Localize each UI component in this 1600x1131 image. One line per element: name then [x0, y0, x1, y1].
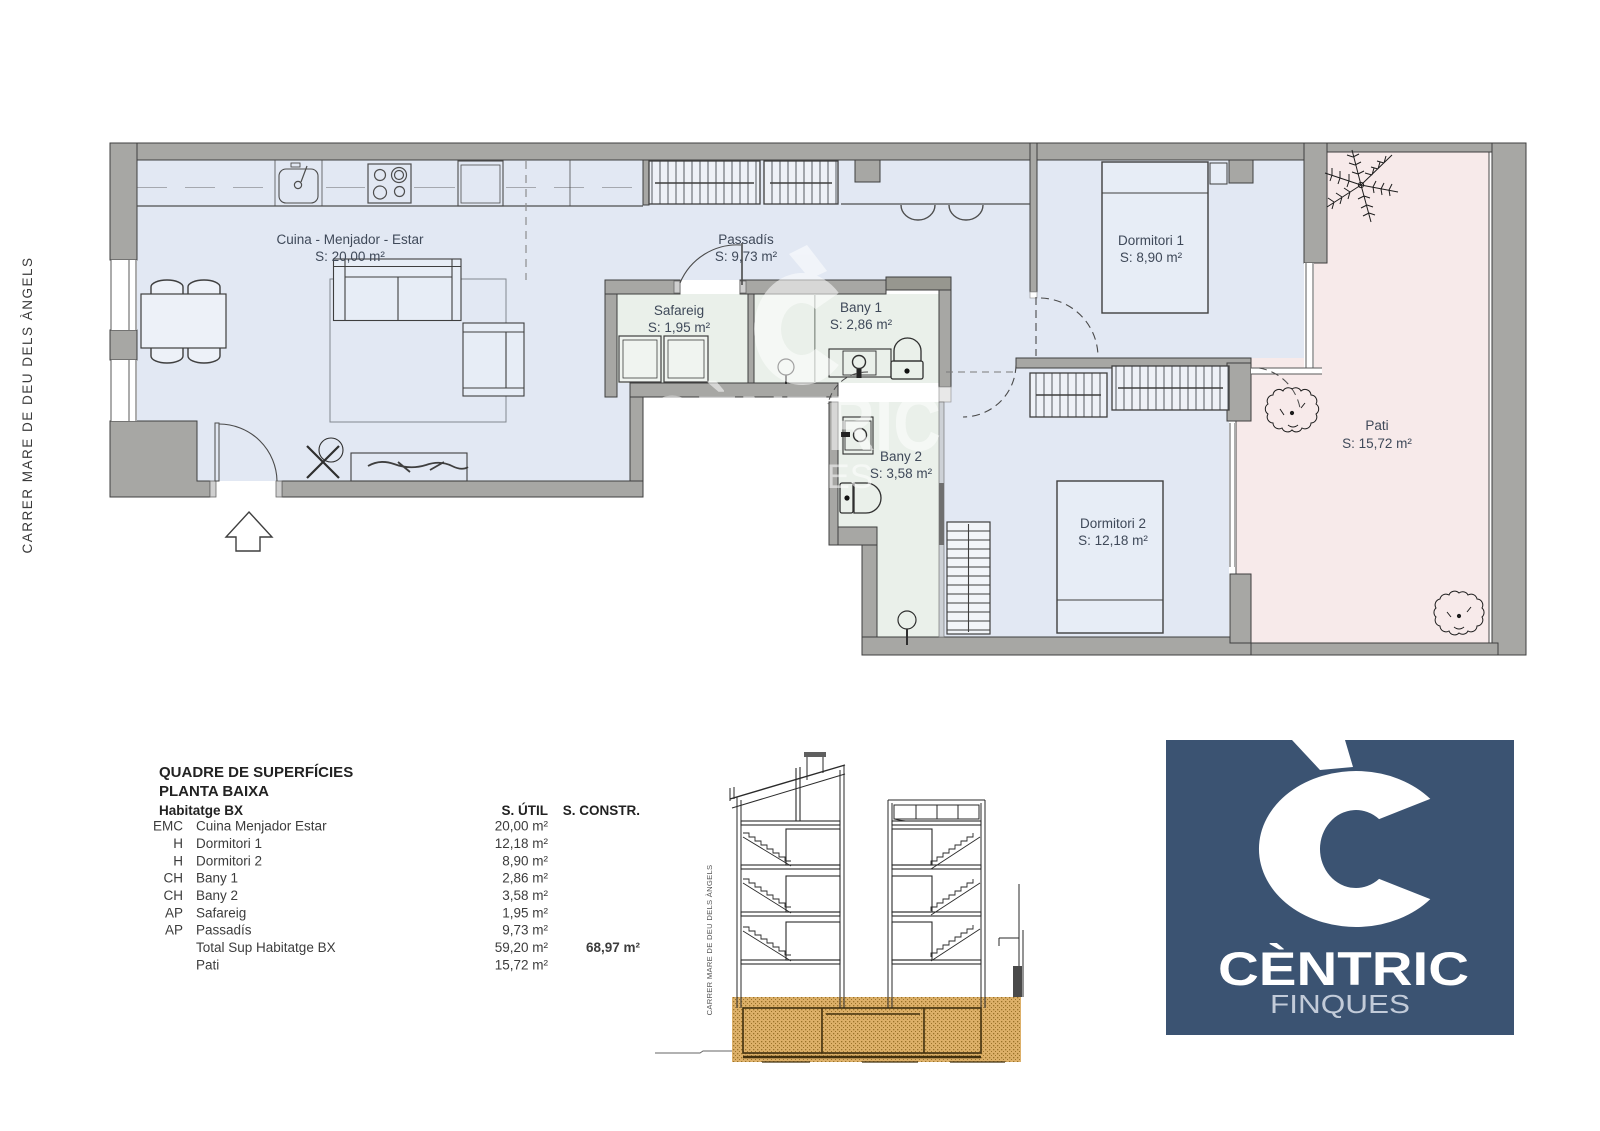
svg-text:Passadís: Passadís	[196, 923, 252, 938]
svg-text:S: 2,86 m²: S: 2,86 m²	[830, 317, 893, 332]
svg-text:Pati: Pati	[196, 957, 219, 972]
svg-text:S: 9,73 m²: S: 9,73 m²	[715, 249, 778, 264]
svg-text:CARRER MARE DE DEU DELS ÀNGELS: CARRER MARE DE DEU DELS ÀNGELS	[705, 865, 714, 1016]
svg-text:Cuina - Menjador - Estar: Cuina - Menjador - Estar	[276, 232, 424, 247]
svg-text:Dormitori 1: Dormitori 1	[196, 836, 262, 851]
svg-text:FINQUES: FINQUES	[718, 458, 873, 496]
svg-text:Dormitori 2: Dormitori 2	[196, 853, 262, 868]
svg-text:PLANTA BAIXA: PLANTA BAIXA	[159, 783, 269, 800]
svg-text:S. CONSTR.: S. CONSTR.	[563, 803, 640, 818]
svg-text:15,72 m²: 15,72 m²	[495, 957, 549, 972]
svg-text:Bany 2: Bany 2	[196, 888, 238, 903]
svg-text:Bany 2: Bany 2	[880, 449, 922, 464]
svg-text:Cuina Menjador Estar: Cuina Menjador Estar	[196, 819, 327, 834]
svg-text:H: H	[173, 836, 183, 851]
svg-text:H: H	[173, 853, 183, 868]
svg-text:Safareig: Safareig	[196, 905, 246, 920]
svg-text:S: 20,00 m²: S: 20,00 m²	[315, 249, 385, 264]
svg-text:Pati: Pati	[1365, 418, 1388, 433]
svg-text:S: 8,90 m²: S: 8,90 m²	[1120, 250, 1183, 265]
svg-text:AP: AP	[165, 905, 183, 920]
svg-text:1,95 m²: 1,95 m²	[502, 905, 548, 920]
svg-text:12,18 m²: 12,18 m²	[495, 836, 549, 851]
svg-text:2,86 m²: 2,86 m²	[502, 871, 548, 886]
svg-text:68,97 m²: 68,97 m²	[586, 940, 641, 955]
svg-text:FINQUES: FINQUES	[1270, 989, 1410, 1019]
svg-text:CÈNTRIC: CÈNTRIC	[1218, 942, 1469, 995]
svg-text:Bany 1: Bany 1	[196, 871, 238, 886]
svg-text:Dormitori 2: Dormitori 2	[1080, 516, 1146, 531]
svg-text:EMC: EMC	[153, 819, 183, 834]
svg-text:8,90 m²: 8,90 m²	[502, 853, 548, 868]
svg-text:Total Sup Habitatge BX: Total Sup Habitatge BX	[196, 940, 336, 955]
svg-text:CARRER MARE DE DEU DELS ÀNGELS: CARRER MARE DE DEU DELS ÀNGELS	[20, 256, 35, 553]
svg-text:S: 1,95 m²: S: 1,95 m²	[648, 320, 711, 335]
svg-text:Dormitori 1: Dormitori 1	[1118, 233, 1184, 248]
svg-text:59,20 m²: 59,20 m²	[495, 940, 549, 955]
svg-text:Safareig: Safareig	[654, 303, 704, 318]
svg-text:20,00 m²: 20,00 m²	[495, 819, 549, 834]
svg-text:CH: CH	[164, 888, 184, 903]
svg-text:Bany 1: Bany 1	[840, 300, 882, 315]
svg-text:S: 12,18 m²: S: 12,18 m²	[1078, 533, 1148, 548]
svg-text:Passadís: Passadís	[718, 232, 774, 247]
svg-text:CH: CH	[164, 871, 184, 886]
svg-text:3,58 m²: 3,58 m²	[502, 888, 548, 903]
svg-text:S: 3,58 m²: S: 3,58 m²	[870, 466, 933, 481]
svg-text:Habitatge BX: Habitatge BX	[159, 803, 243, 818]
svg-text:QUADRE DE SUPERFÍCIES: QUADRE DE SUPERFÍCIES	[159, 764, 353, 781]
svg-text:S: 15,72 m²: S: 15,72 m²	[1342, 436, 1412, 451]
svg-text:S. ÚTIL: S. ÚTIL	[502, 803, 549, 818]
svg-text:AP: AP	[165, 923, 183, 938]
svg-text:9,73 m²: 9,73 m²	[502, 923, 548, 938]
